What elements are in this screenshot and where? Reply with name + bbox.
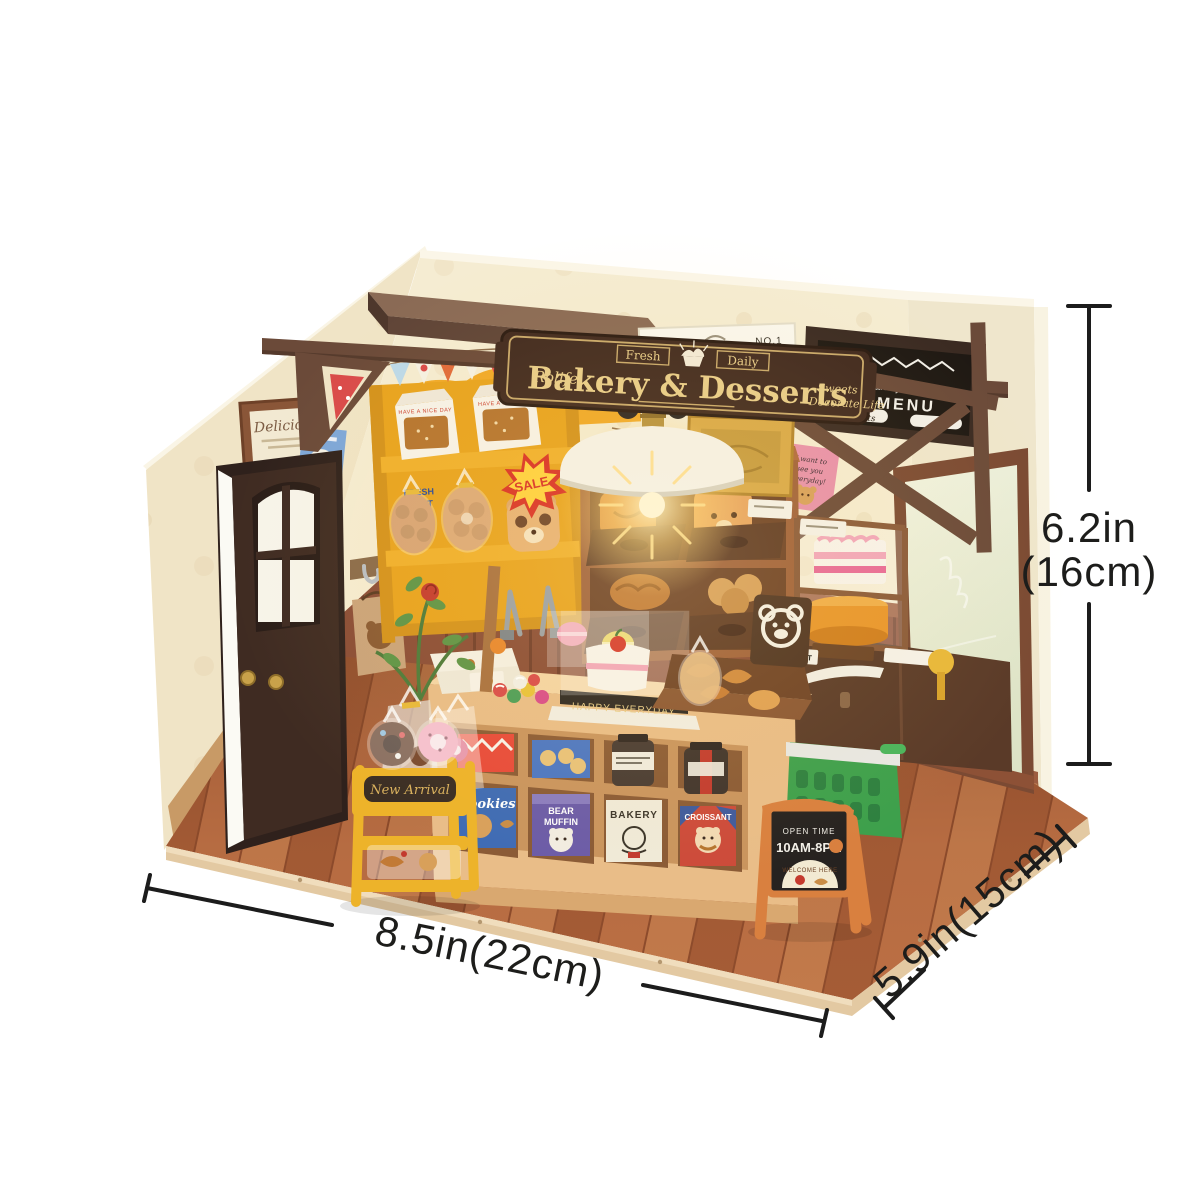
scene: Delicious (0, 0, 1200, 1200)
height-annotation-line1: 6.2in (1041, 504, 1137, 551)
ambient-glow (230, 230, 1070, 890)
product-photo-miniature-bakery: Delicious (0, 0, 1200, 1200)
height-annotation-line2: (16cm) (1021, 548, 1158, 595)
cart-bottom-tray (368, 846, 460, 878)
